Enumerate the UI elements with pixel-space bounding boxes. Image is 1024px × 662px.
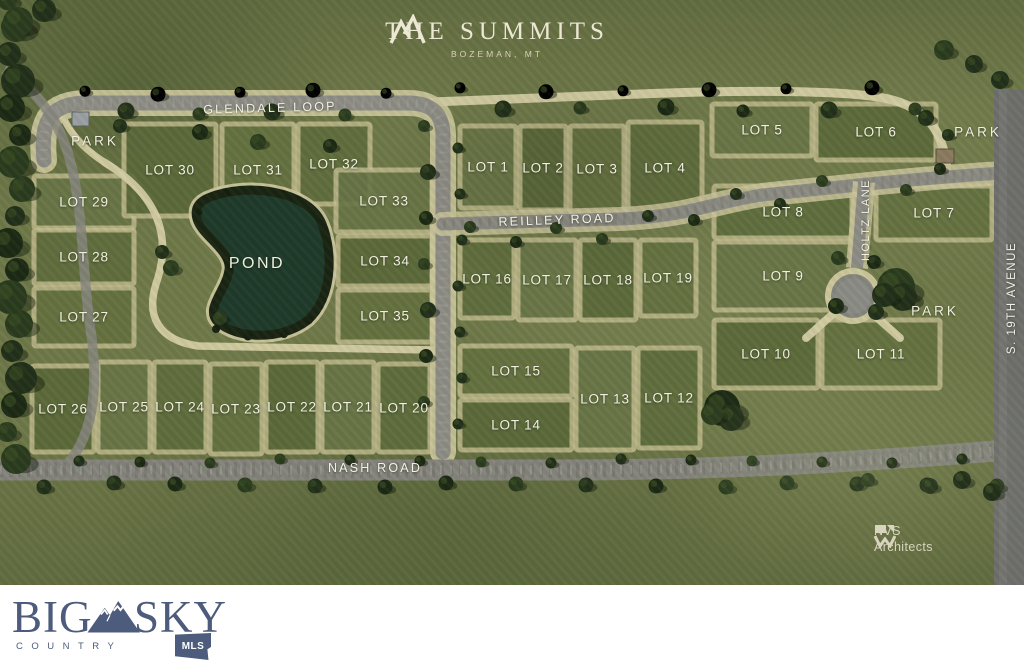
lot-label-23: LOT 23 bbox=[211, 402, 261, 417]
park-label-right: PARK bbox=[911, 304, 959, 319]
big-sky-mountain-icon bbox=[86, 593, 141, 639]
lot-label-14: LOT 14 bbox=[491, 418, 541, 433]
lot-label-35: LOT 35 bbox=[360, 309, 410, 324]
nvs-logo-icon bbox=[874, 524, 896, 548]
lot-label-29: LOT 29 bbox=[59, 195, 109, 210]
lot-label-10: LOT 10 bbox=[741, 347, 791, 362]
lot-label-25: LOT 25 bbox=[99, 400, 149, 415]
lot-label-2: LOT 2 bbox=[522, 161, 563, 176]
lot-label-26: LOT 26 bbox=[38, 402, 88, 417]
site-plan-map: THE SUMMITS BOZEMAN, MT GLENDALE LOOP RE… bbox=[0, 0, 1024, 585]
lot-label-19: LOT 19 bbox=[643, 271, 693, 286]
terrain-graphic bbox=[0, 0, 1024, 585]
road-label-s-19th-avenue: S. 19TH AVENUE bbox=[1006, 242, 1018, 354]
lot-label-15: LOT 15 bbox=[491, 364, 541, 379]
lot-label-7: LOT 7 bbox=[913, 206, 954, 221]
lot-label-30: LOT 30 bbox=[145, 163, 195, 178]
lot-label-21: LOT 21 bbox=[323, 400, 373, 415]
lot-label-6: LOT 6 bbox=[855, 125, 896, 140]
lot-label-34: LOT 34 bbox=[360, 254, 410, 269]
logo-word-big: BIG bbox=[12, 597, 93, 638]
lot-label-22: LOT 22 bbox=[267, 400, 317, 415]
big-sky-country-mls-logo: BIG SKY COUNTRY MLS bbox=[12, 593, 227, 652]
development-title: THE SUMMITS BOZEMAN, MT bbox=[385, 14, 609, 59]
road-label-holtz-lane: HOLTZ LANE bbox=[860, 179, 872, 261]
lot-label-28: LOT 28 bbox=[59, 250, 109, 265]
park-label-top-left: PARK bbox=[71, 134, 119, 149]
lot-label-33: LOT 33 bbox=[359, 194, 409, 209]
nvs-architects-logo: NVS Architects bbox=[874, 524, 933, 555]
lot-label-17: LOT 17 bbox=[522, 273, 572, 288]
lot-label-8: LOT 8 bbox=[762, 205, 803, 220]
lot-label-16: LOT 16 bbox=[462, 272, 512, 287]
logo-word-sky: SKY bbox=[134, 597, 227, 638]
lot-label-12: LOT 12 bbox=[644, 391, 694, 406]
lot-label-4: LOT 4 bbox=[644, 161, 685, 176]
lot-label-11: LOT 11 bbox=[857, 347, 906, 362]
summits-mountain-logo-icon bbox=[385, 14, 427, 44]
lot-label-27: LOT 27 bbox=[59, 310, 109, 325]
lot-label-20: LOT 20 bbox=[379, 401, 429, 416]
park-label-top-right: PARK bbox=[954, 125, 1002, 140]
development-location: BOZEMAN, MT bbox=[385, 49, 609, 59]
lot-label-9: LOT 9 bbox=[762, 269, 803, 284]
mls-badge: MLS bbox=[175, 633, 211, 660]
lot-label-3: LOT 3 bbox=[576, 162, 617, 177]
plat-map-page: THE SUMMITS BOZEMAN, MT GLENDALE LOOP RE… bbox=[0, 0, 1024, 662]
lot-label-5: LOT 5 bbox=[741, 123, 782, 138]
lot-label-13: LOT 13 bbox=[580, 392, 630, 407]
lot-label-18: LOT 18 bbox=[583, 273, 633, 288]
lot-label-31: LOT 31 bbox=[233, 163, 283, 178]
road-label-nash-road: NASH ROAD bbox=[328, 461, 422, 475]
footer-bar: BIG SKY COUNTRY MLS bbox=[0, 585, 1024, 662]
lot-label-24: LOT 24 bbox=[155, 400, 205, 415]
lot-label-1: LOT 1 bbox=[467, 160, 508, 175]
pond-label: POND bbox=[229, 255, 285, 273]
lot-label-32: LOT 32 bbox=[309, 157, 359, 172]
